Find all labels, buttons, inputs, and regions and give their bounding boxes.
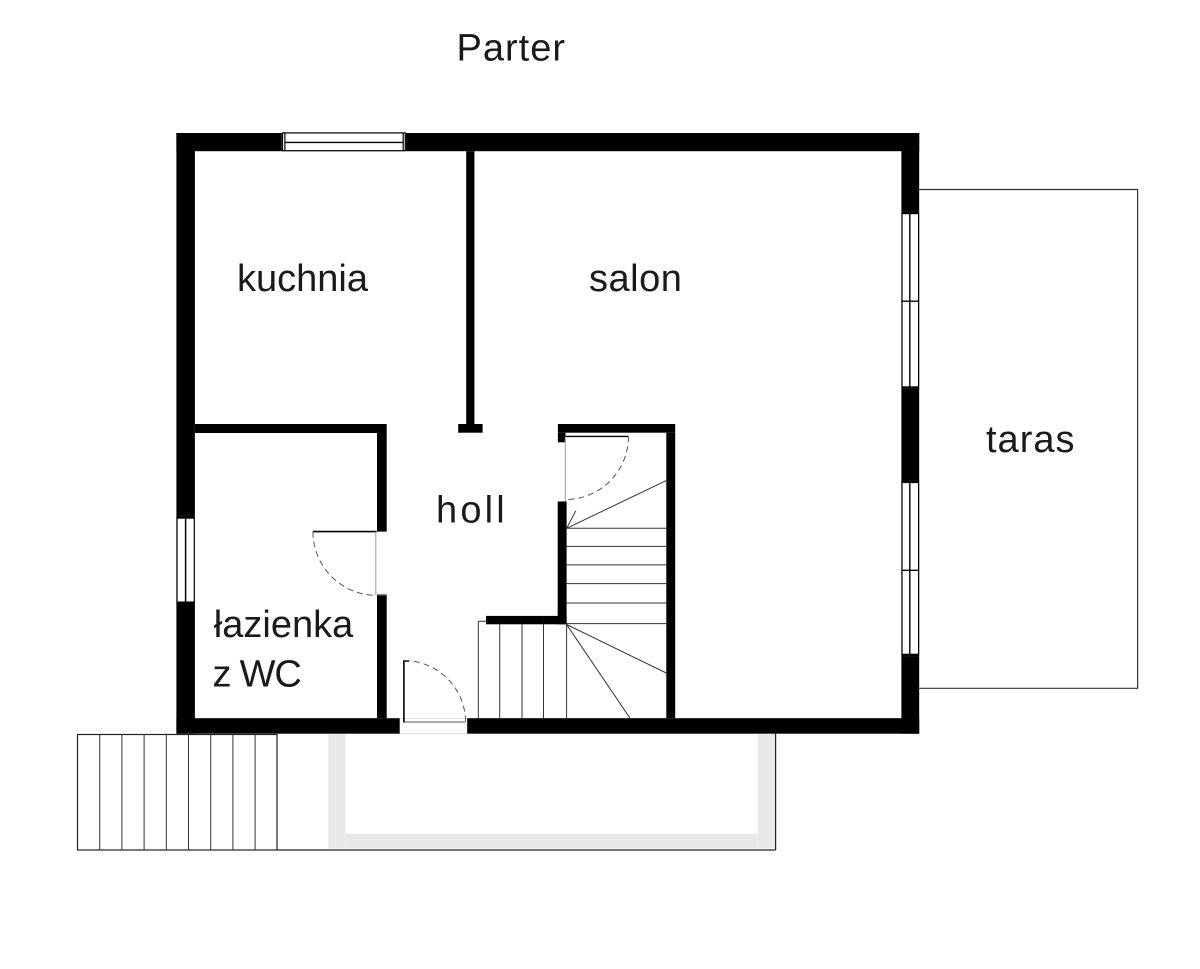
svg-text:taras: taras <box>986 419 1075 461</box>
svg-text:salon: salon <box>589 258 682 300</box>
svg-text:Parter: Parter <box>457 27 566 69</box>
svg-text:kuchnia: kuchnia <box>237 258 369 300</box>
svg-text:z WC: z WC <box>213 653 301 695</box>
svg-text:łazienka: łazienka <box>214 604 354 646</box>
svg-text:holl: holl <box>436 490 508 532</box>
